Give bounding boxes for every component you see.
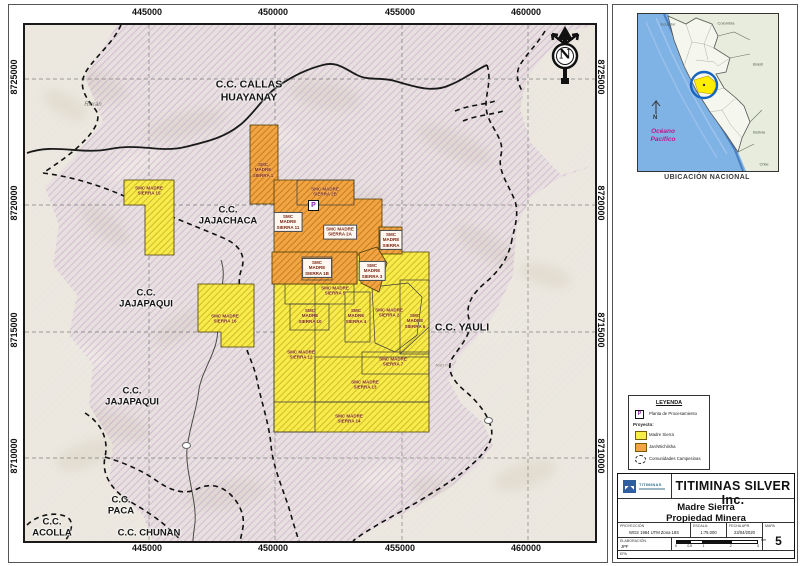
community-label-callas-huayanay: C.C. CALLAS HUAYANAY (216, 78, 283, 103)
community-label-yauli: C.C. YAULI (435, 322, 489, 335)
claim-label-sierra-10: SMC MADRE SIERRA 10 (298, 308, 321, 324)
community-boundary-icon (635, 455, 646, 464)
claim-label-sierra-15: SMC MADRE SIERRA 15 (135, 186, 163, 197)
map-number-value: 5 (763, 534, 794, 548)
claim-label-sierra: SMC MADRE SIERRA (379, 230, 402, 250)
place-label-ricran: Ricrán (84, 102, 101, 108)
x-tick-bottom-455000: 455000 (385, 543, 415, 553)
elaboration-label: ELABORACIÓN (620, 539, 646, 543)
claim-label-sierra-6: SMC MADRE SIERRA 6 (405, 313, 426, 329)
y-tick-right-8715000: 8715000 (596, 312, 606, 347)
claim-label-sierra-11: SMC MADRE SIERRA 11 (274, 212, 303, 232)
footer-text: EPA (620, 552, 627, 556)
scalebar-cell: 0 0.5 1 2 3 Km (672, 538, 763, 551)
claim-label-sierra-3: SMC MADRE SIERRA 3 (359, 261, 386, 281)
footer-cell: EPA (618, 551, 794, 558)
community-label-jajapaqui-north: C.C. JAJAPAQUI (119, 288, 173, 311)
legend-item-madre-sierra: Madre Sierra (634, 431, 709, 439)
claim-label-sierra-13: SMC MADRE SIERRA 13 (351, 380, 379, 391)
map-number-cell: MAPA 5 (763, 523, 794, 551)
map-title-cell: Madre Sierra Propiedad Minera (618, 499, 794, 523)
orange-claim-swatch-icon (635, 443, 647, 452)
y-tick-left-8725000: 8725000 (9, 59, 19, 94)
x-tick-top-450000: 450000 (258, 7, 288, 17)
y-tick-right-8710000: 8710000 (596, 438, 606, 473)
ocean-label: Océano Pacífico (651, 128, 676, 144)
country-label-colombia: Colombia (718, 21, 735, 26)
plant-marker-icon: P (635, 410, 644, 419)
date-value: 23/04/2020 (727, 530, 762, 535)
date-label: FECHA APR. (729, 524, 750, 528)
legend-item-plant-label: Planta de Procesamiento (649, 411, 697, 416)
title-block: TITIMINAS TITIMINAS SILVER Inc. Madre Si… (617, 473, 795, 559)
legend-item-second-project-label: Jan/Wichilsha (649, 444, 676, 449)
y-tick-left-8720000: 8720000 (9, 185, 19, 220)
scalebar-tick-05: 0.5 (687, 544, 692, 548)
logo-underline (639, 488, 665, 490)
scalebar-tick-0: 0 (675, 544, 677, 548)
community-label-jajapaqui-south: C.C. JAJAPAQUI (105, 386, 159, 409)
x-tick-top-460000: 460000 (511, 7, 541, 17)
scalebar-tick-3: 3 (757, 544, 759, 548)
x-tick-top-445000: 445000 (132, 7, 162, 17)
map-graphics (25, 25, 595, 541)
claim-label-sierra-12: SMC MADRE SIERRA 12 (287, 350, 315, 361)
projection-value: WGS 1984 UTM Zona 18S (618, 530, 690, 535)
scalebar-unit: Km (761, 538, 766, 542)
legend: LEYENDA P Planta de Procesamiento Proyec… (628, 395, 710, 470)
legend-item-second-project: Jan/Wichilsha (634, 443, 709, 451)
north-letter: N (559, 48, 571, 63)
claim-label-sierra-4: SMC MADRE SIERRA 4 (346, 308, 367, 324)
scale-label: ESCALA: (693, 524, 708, 528)
country-label-brasil: Brasil (753, 62, 763, 67)
inset-caption: UBICACIÓN NACIONAL (637, 174, 777, 181)
legend-group-proyecto: Proyecto: (633, 422, 709, 427)
claim-label-sierra-2a: SMC MADRE SIERRA 2A (323, 225, 357, 240)
claim-label-sierra-2: SMC MADRE SIERRA 2 (375, 308, 403, 319)
yellow-claim-swatch-icon (635, 431, 647, 440)
processing-plant-marker: P (308, 200, 319, 211)
scale-value: 1:75.000 (691, 530, 726, 535)
elevation-label: 4587 m (435, 363, 448, 368)
claim-label-sierra-14: SMC MADRE SIERRA 14 (335, 414, 363, 425)
inset-map-graphics (638, 14, 778, 171)
x-tick-bottom-445000: 445000 (132, 543, 162, 553)
claim-label-sierra-5: SMC MADRE SIERRA 5 (321, 286, 349, 297)
project-title: Madre Sierra (618, 502, 794, 513)
y-tick-left-8710000: 8710000 (9, 438, 19, 473)
legend-item-communities-label: Comunidades Campesinas (649, 456, 701, 461)
y-tick-right-8720000: 8720000 (596, 185, 606, 220)
projection-label: PROYECCIÓN (620, 524, 644, 528)
road-shield (484, 417, 493, 424)
y-tick-left-8715000: 8715000 (9, 312, 19, 347)
x-tick-bottom-460000: 460000 (511, 543, 541, 553)
legend-item-communities: Comunidades Campesinas (634, 455, 709, 463)
x-tick-bottom-450000: 450000 (258, 543, 288, 553)
x-tick-top-455000: 455000 (385, 7, 415, 17)
y-tick-right-8725000: 8725000 (596, 59, 606, 94)
community-label-chunan: C.C. CHUNAN (118, 527, 181, 538)
country-label-bolivia: Bolivia (753, 130, 765, 135)
company-logo-text: TITIMINAS (639, 482, 662, 487)
claim-label-sierra-1: SMC MADRE SIERRA 1 (253, 162, 274, 178)
company-logo-icon (623, 480, 636, 493)
legend-item-plant: P Planta de Procesamiento (634, 410, 709, 418)
claim-label-sierra-16: SMC MADRE SIERRA 16 (211, 314, 239, 325)
community-label-paca: C.C. PACA (108, 495, 134, 518)
elaboration-cell: ELABORACIÓN JPF (618, 538, 672, 551)
company-name-cell: TITIMINAS SILVER Inc. (672, 474, 794, 499)
elaboration-value: JPF (621, 544, 671, 549)
date-cell: FECHA APR. 23/04/2020 (727, 523, 763, 538)
inset-north-letter: N (653, 115, 657, 121)
projection-cell: PROYECCIÓN WGS 1984 UTM Zona 18S (618, 523, 691, 538)
community-label-jajachaca: C.C. JAJACHACA (199, 205, 258, 228)
legend-title: LEYENDA (629, 400, 709, 406)
country-label-chile: Chile (759, 162, 768, 167)
road-shield (182, 442, 191, 449)
scalebar-tick-2: 2 (730, 544, 732, 548)
community-label-acolla: C.C. ACOLLA (32, 517, 72, 540)
scale-cell: ESCALA: 1:75.000 (691, 523, 727, 538)
north-arrow: N (544, 26, 586, 88)
country-label-ecuador: Ecuador (661, 22, 676, 27)
scalebar-tick-1: 1 (702, 544, 704, 548)
inset-map: Ecuador Colombia Brasil Bolivia Chile Oc… (637, 13, 779, 172)
logo-cell: TITIMINAS (618, 474, 672, 499)
map-canvas: P C.C. CALLAS HUAYANAY C.C. JAJACHACA C.… (23, 23, 597, 543)
legend-item-madre-sierra-label: Madre Sierra (649, 432, 674, 437)
map-number-label: MAPA (765, 524, 775, 528)
claim-label-sierra-1b: SMC MADRE SIERRA 1B (302, 258, 332, 278)
map-sheet: 445000 450000 455000 460000 445000 45000… (0, 0, 800, 566)
claim-label-sierra-7: SMC MADRE SIERRA 7 (379, 357, 407, 368)
claim-label-sierra-2b: SMC MADRE SIERRA 2B (311, 187, 339, 198)
